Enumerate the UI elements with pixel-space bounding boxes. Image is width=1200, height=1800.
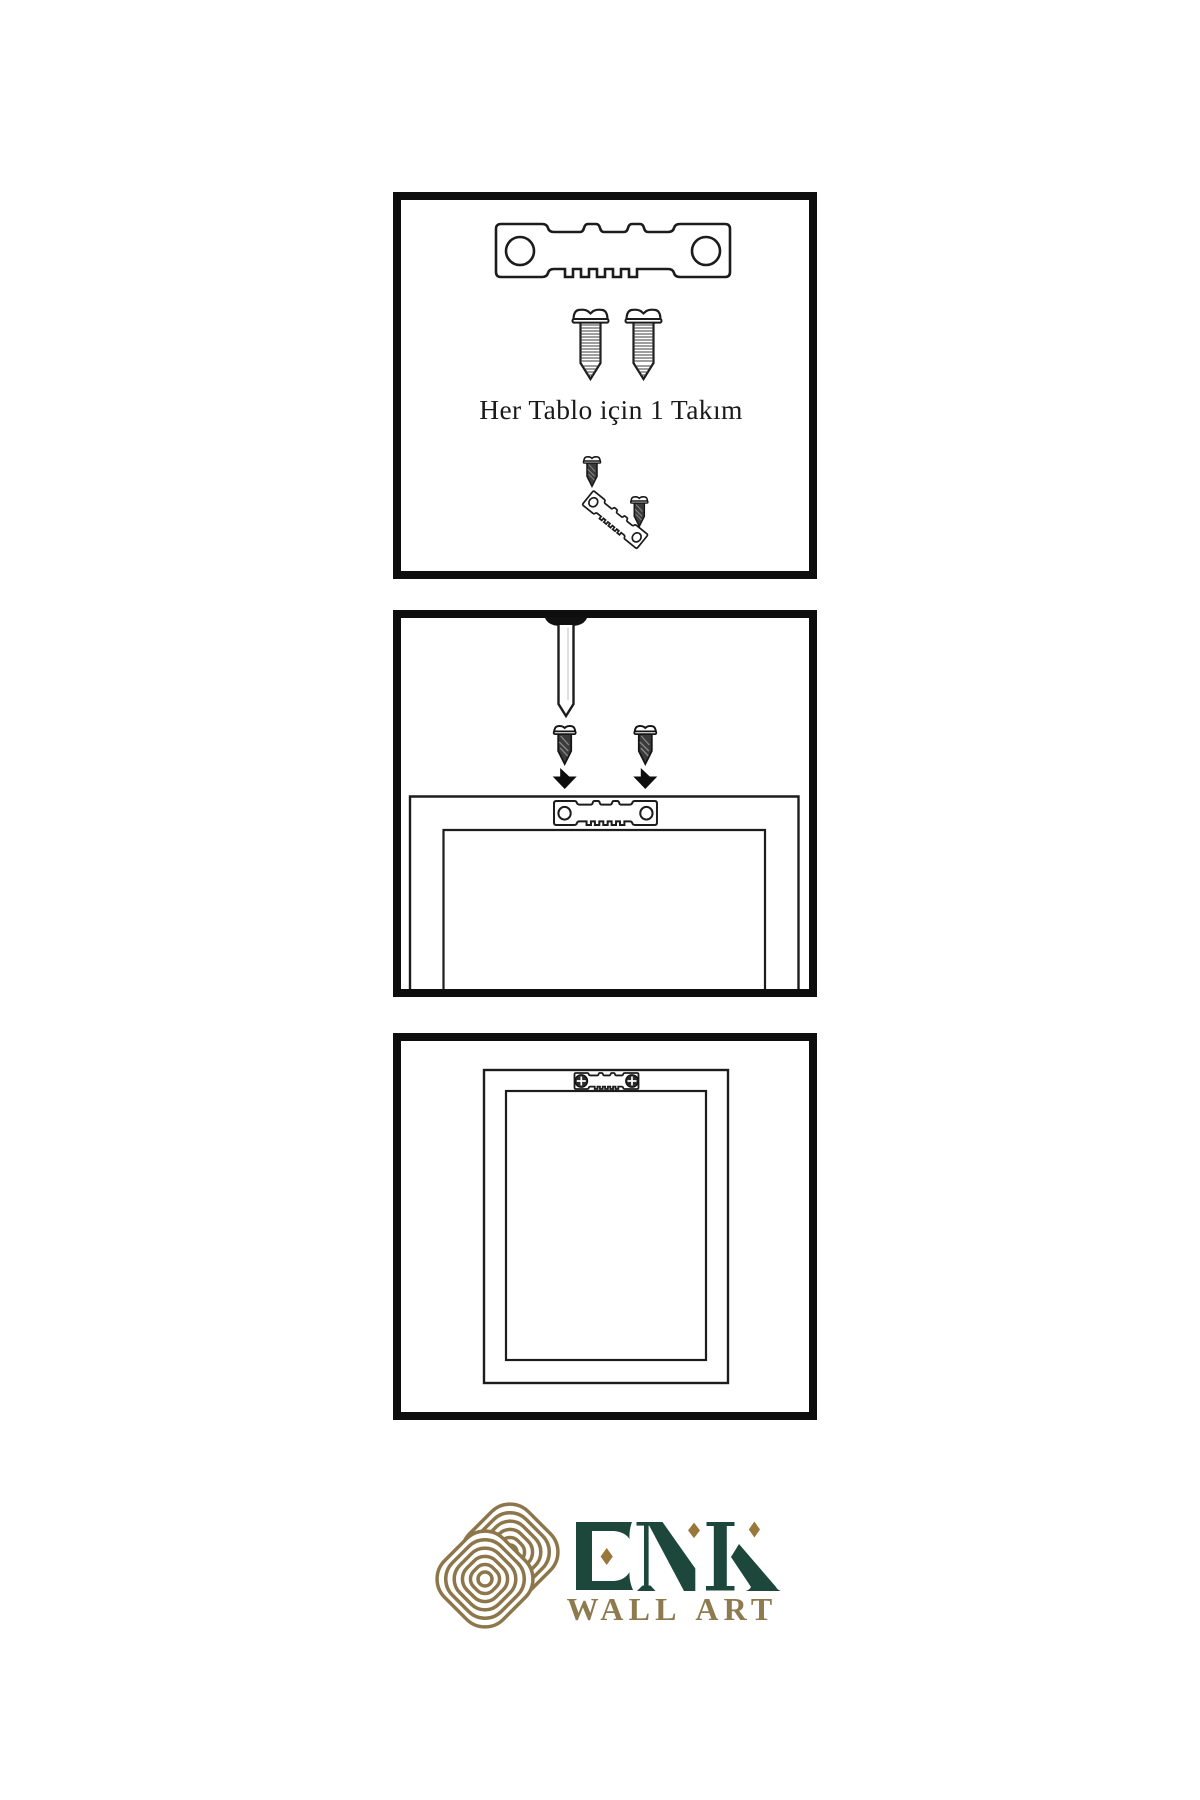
svg-text:Her Tablo için 1 Takım: Her Tablo için 1 Takım — [479, 394, 743, 425]
svg-text:WALL ART: WALL ART — [567, 1591, 778, 1627]
